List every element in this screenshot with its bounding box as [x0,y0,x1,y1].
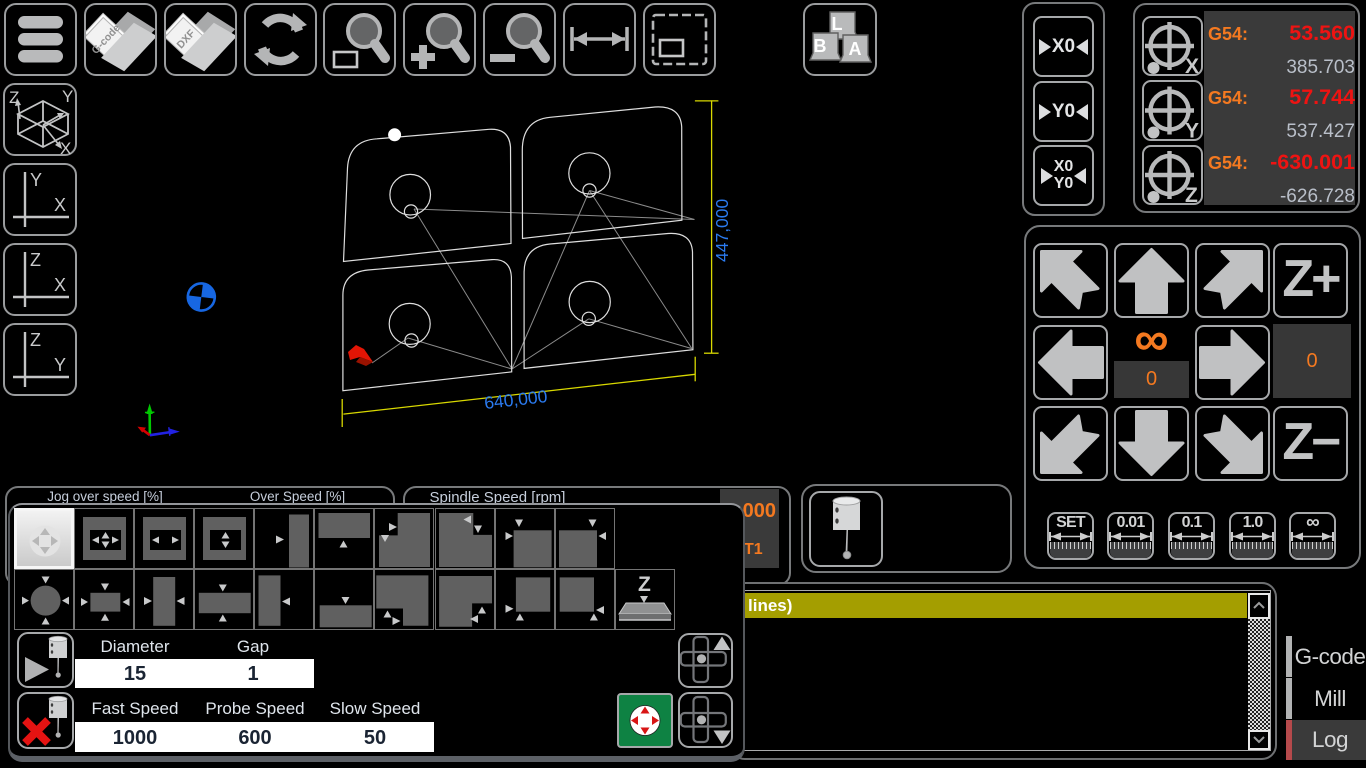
svg-text:Z: Z [30,250,41,270]
svg-text:X: X [1185,55,1199,74]
svg-text:B: B [814,36,827,56]
svg-text:Z: Z [30,330,41,350]
svg-text:L: L [832,14,843,34]
svg-text:Z: Z [1185,184,1198,203]
svg-text:Z: Z [9,88,19,107]
svg-text:X: X [54,195,66,215]
svg-text:Y: Y [62,87,73,106]
svg-text:Y: Y [30,170,42,190]
svg-text:Y: Y [1185,120,1199,140]
svg-text:A: A [849,39,862,59]
svg-text:Y: Y [54,355,66,375]
svg-text:X: X [60,139,71,154]
svg-text:X: X [54,275,66,295]
svg-text:640,000: 640,000 [483,386,548,413]
svg-text:447,000: 447,000 [712,198,732,262]
svg-text:Z: Z [638,573,651,596]
